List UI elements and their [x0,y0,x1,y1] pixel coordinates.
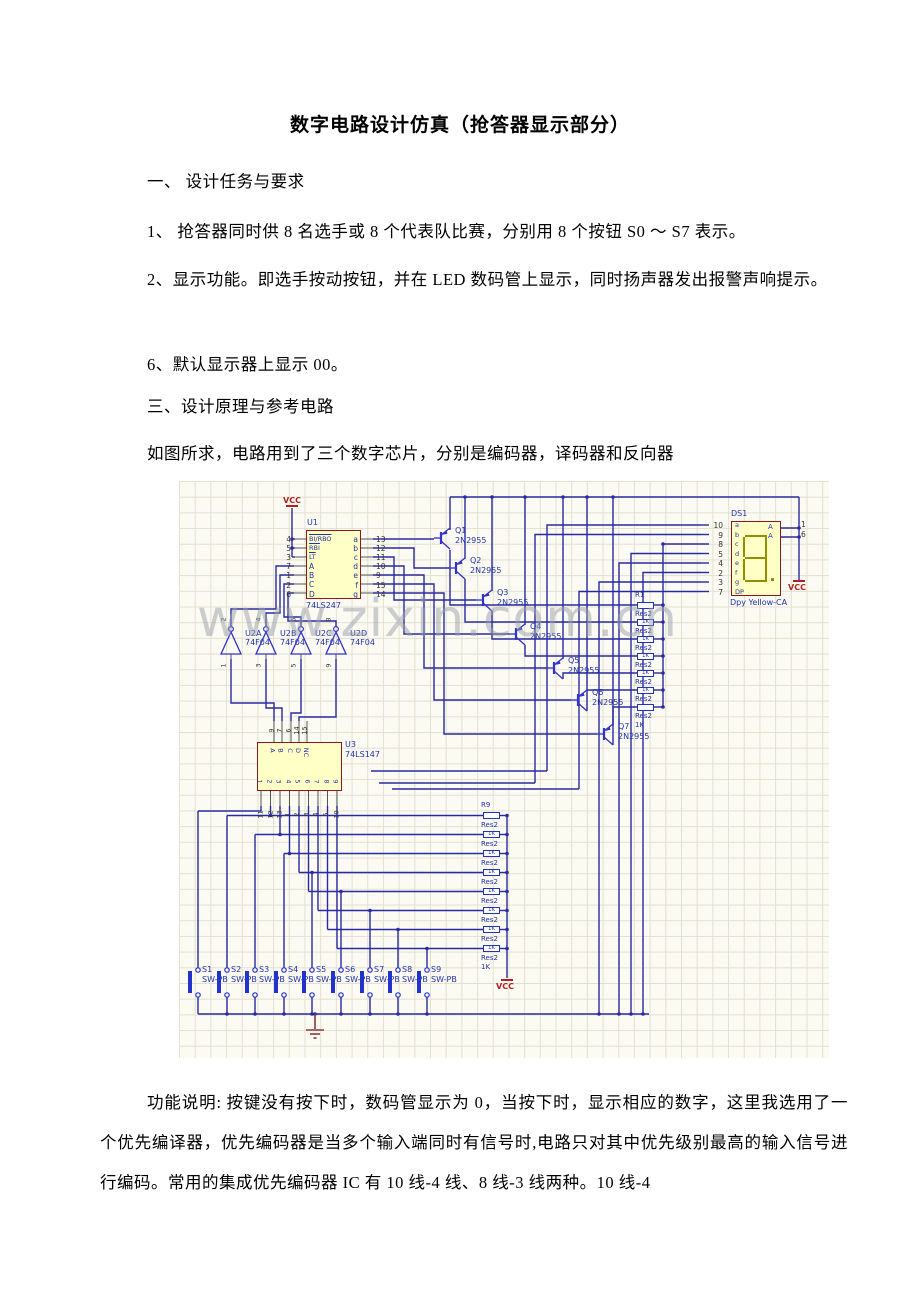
pushbutton-icon [358,965,374,999]
pin-number: 14 [294,726,301,734]
resistor [483,812,500,819]
u3-pin-label: 6 [303,779,310,783]
resistor-name: Res2 [481,897,498,905]
resistor-value: 1K [488,850,495,856]
pin-number: 15 [302,726,309,734]
resistor-name: Res2 [635,678,652,686]
function-description: 功能说明: 按键没有按下时，数码管显示为 0，当按下时，显示相应的数字，这里我选… [100,1083,848,1203]
resistor-value: 1K [488,945,495,951]
u3-pin-label: NC [302,748,309,757]
u3-pin-label: 1 [256,779,263,783]
resistor-name: Res2 [481,859,498,867]
q-ref: Q1 [455,526,466,535]
pnp-transistor-icon [434,527,454,551]
resistor-value: 1K [642,653,649,659]
segment-b [765,537,767,557]
pin-number: 5 [322,812,329,816]
resistor-name: Res2 [635,695,652,703]
resistor-name: Res2 [481,878,498,886]
switch-ref: S9 [431,965,441,974]
watermark: www.zixin.com.cn [197,589,837,649]
pin-number: 1 [284,812,291,816]
resistor: 1K [637,653,654,660]
segment-d [745,580,767,582]
pushbutton-icon [386,965,402,999]
vcc-symbol-top: VCC [283,496,301,505]
resistor-value: 1K [488,869,495,875]
pushbutton-icon [329,965,345,999]
pin-number: 10 [334,810,341,818]
u3-pin-label: C [286,748,293,753]
q-ref: Q7 [618,722,629,731]
u1-control-pin-labels: BI/RBO RBI LT [309,535,332,563]
ds1-left-pin-numbers: 10 9 8 5 4 2 3 7 [709,521,723,597]
pin-number: 11 [258,810,265,818]
pnp-transistor-icon [449,557,469,581]
switch-ref: S2 [231,965,241,974]
ground-symbol [306,1029,326,1041]
switch-ref: S6 [345,965,355,974]
u3-pin-label: 3 [275,779,282,783]
resistor: 1K [637,687,654,694]
segment-e [743,559,745,580]
resistor: 1K [483,945,500,952]
pushbutton-icon [186,965,202,999]
resistor-name: Res2 [481,916,498,924]
q-part: 2N2955 [592,698,623,707]
resistor-name: Res2 [481,840,498,848]
u3-pin-label: 9 [332,779,339,783]
pin-number: 12 [267,810,274,818]
resistor: 1K [483,888,500,895]
pin-number: 2 [294,812,301,816]
resistor-value: 1K [488,926,495,932]
pin-number: 3 [303,812,310,816]
ds1-ref: DS1 [731,509,747,518]
heading-1: 一、 设计任务与要求 [147,168,305,192]
heading-3: 三、设计原理与参考电路 [147,393,334,417]
q-part: 2N2955 [568,666,599,675]
resistor-value: 1K [481,963,490,971]
u3-part: 74LS147 [345,750,380,759]
u3-pin-label: 4 [284,779,291,783]
transistor-q2: Q2 2N2955 [449,557,509,581]
r9-ref: R9 [481,801,490,809]
switch-s9: S9 SW-PB [415,965,459,999]
circuit-schematic: VCC VCC VCC U1 74LS247 4 5 3 7 1 2 6 BI/… [179,481,829,1058]
switch-ref: S5 [316,965,326,974]
segment-g [745,557,767,559]
pushbutton-icon [215,965,231,999]
resistor-name: Res2 [481,954,498,962]
u3-pin-label: 2 [265,779,272,783]
u3-pin-label: B [277,748,284,752]
resistor: 1K [637,670,654,677]
resistor: 1K [483,850,500,857]
switch-ref: S7 [374,965,384,974]
u3-pin-label: D [294,748,301,753]
resistor [637,704,654,711]
resistor-value: 1K [488,888,495,894]
u3-pin-label: 7 [313,779,320,783]
pin-number: 9 [269,728,276,732]
pin-number: 1 [221,663,228,667]
resistor-value: 1K [488,831,495,837]
transistor-q6: Q6 2N2955 [571,689,631,713]
q-part: 2N2955 [455,536,486,545]
segment-c [765,559,767,580]
resistor: 1K [483,831,500,838]
ds1-anode-labels: A A [768,523,773,541]
switch-ref: S3 [259,965,269,974]
resistor-value: 1K [642,670,649,676]
page-title: 数字电路设计仿真（抢答器显示部分） [0,110,920,137]
q-part: 2N2955 [470,566,501,575]
resistor: 1K [483,907,500,914]
resistor-name: Res2 [635,661,652,669]
switch-ref: S8 [402,965,412,974]
pnp-transistor-icon [597,723,617,747]
q-ref: Q2 [470,556,481,565]
q-ref: Q6 [592,688,603,697]
pin-number: 4 [313,812,320,816]
paragraph-3: 6、默认显示器上显示 00。 [147,351,348,375]
pin-number: 3 [256,663,263,667]
switch-ref: S1 [202,965,212,974]
pnp-transistor-icon [547,657,567,681]
q-part: 2N2955 [618,732,649,741]
transistor-q5: Q5 2N2955 [547,657,607,681]
u3-pin-label: 5 [294,779,301,783]
pin-number: 7 [277,728,284,732]
pushbutton-icon [415,965,431,999]
paragraph-1: 1、 抢答器同时供 8 名选手或 8 个代表队比赛，分别用 8 个按钮 S0 ～… [147,218,746,242]
pin-number: 5 [291,663,298,667]
resistor-value: 1K [642,687,649,693]
paragraph-2: 2、显示功能。即选手按动按钮，并在 LED 数码管上显示，同时扬声器发出报警声响… [100,262,830,298]
paragraph-4: 如图所求，电路用到了三个数字芯片，分别是编码器，译码器和反向器 [147,440,674,464]
switch-part: SW-PB [431,975,457,984]
resistor-name: Res2 [635,712,652,720]
resistor: 1K [483,869,500,876]
resistor-value: 1K [635,721,644,729]
pushbutton-icon [300,965,316,999]
u3-ref: U3 [345,740,356,749]
resistor-name: Res2 [481,821,498,829]
pin-number: 6 [286,728,293,732]
u1-ref: U1 [307,518,318,527]
segment-f [743,537,745,557]
transistor-q7: Q7 2N2955 [597,723,657,747]
segment-a [745,535,767,537]
pushbutton-icon [272,965,288,999]
switch-ref: S4 [288,965,298,974]
resistor-name: Res2 [481,935,498,943]
pin-number: 9 [326,663,333,667]
pushbutton-icon [243,965,259,999]
ds1-right-pin-numbers: 1 6 [801,520,806,539]
pnp-transistor-icon [571,689,591,713]
transistor-q1: Q1 2N2955 [434,527,494,551]
segment-dp [771,578,774,581]
u3-pin-label: 8 [322,779,329,783]
u3-pin-label: A [269,748,276,752]
vcc-symbol-bottom: VCC [496,982,514,991]
resistor: 1K [483,926,500,933]
resistor-value: 1K [488,907,495,913]
q-ref: Q5 [568,656,579,665]
